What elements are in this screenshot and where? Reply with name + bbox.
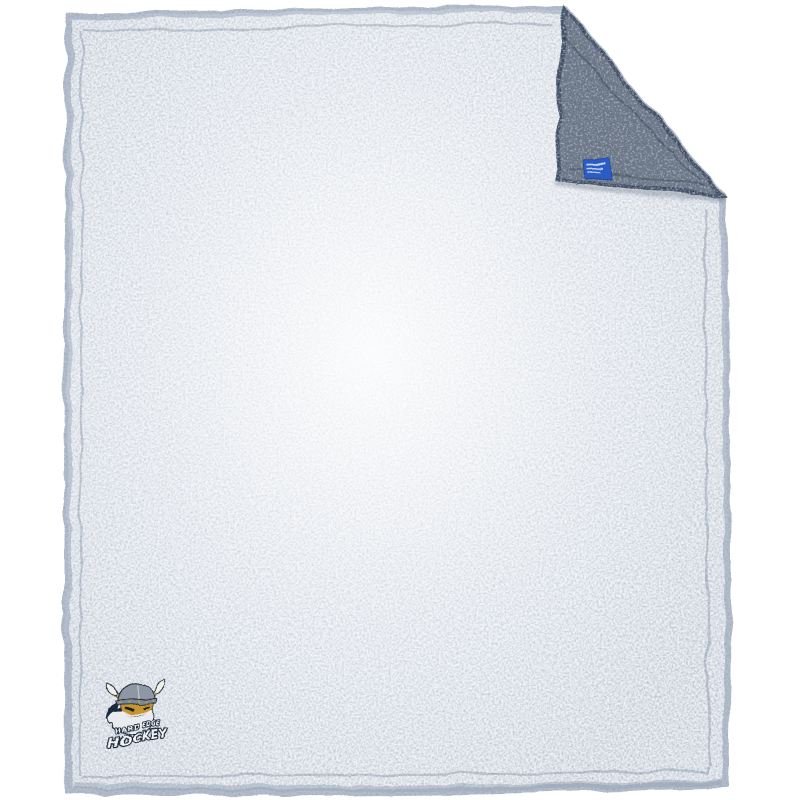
helmet-ridge	[134, 681, 135, 695]
blanket-product-photo: HARD EDGE HOCKEY	[0, 0, 800, 800]
brand-tag	[583, 158, 611, 177]
folded-corner-back	[555, 6, 719, 193]
product-photo-canvas: HARD EDGE HOCKEY	[0, 0, 800, 800]
